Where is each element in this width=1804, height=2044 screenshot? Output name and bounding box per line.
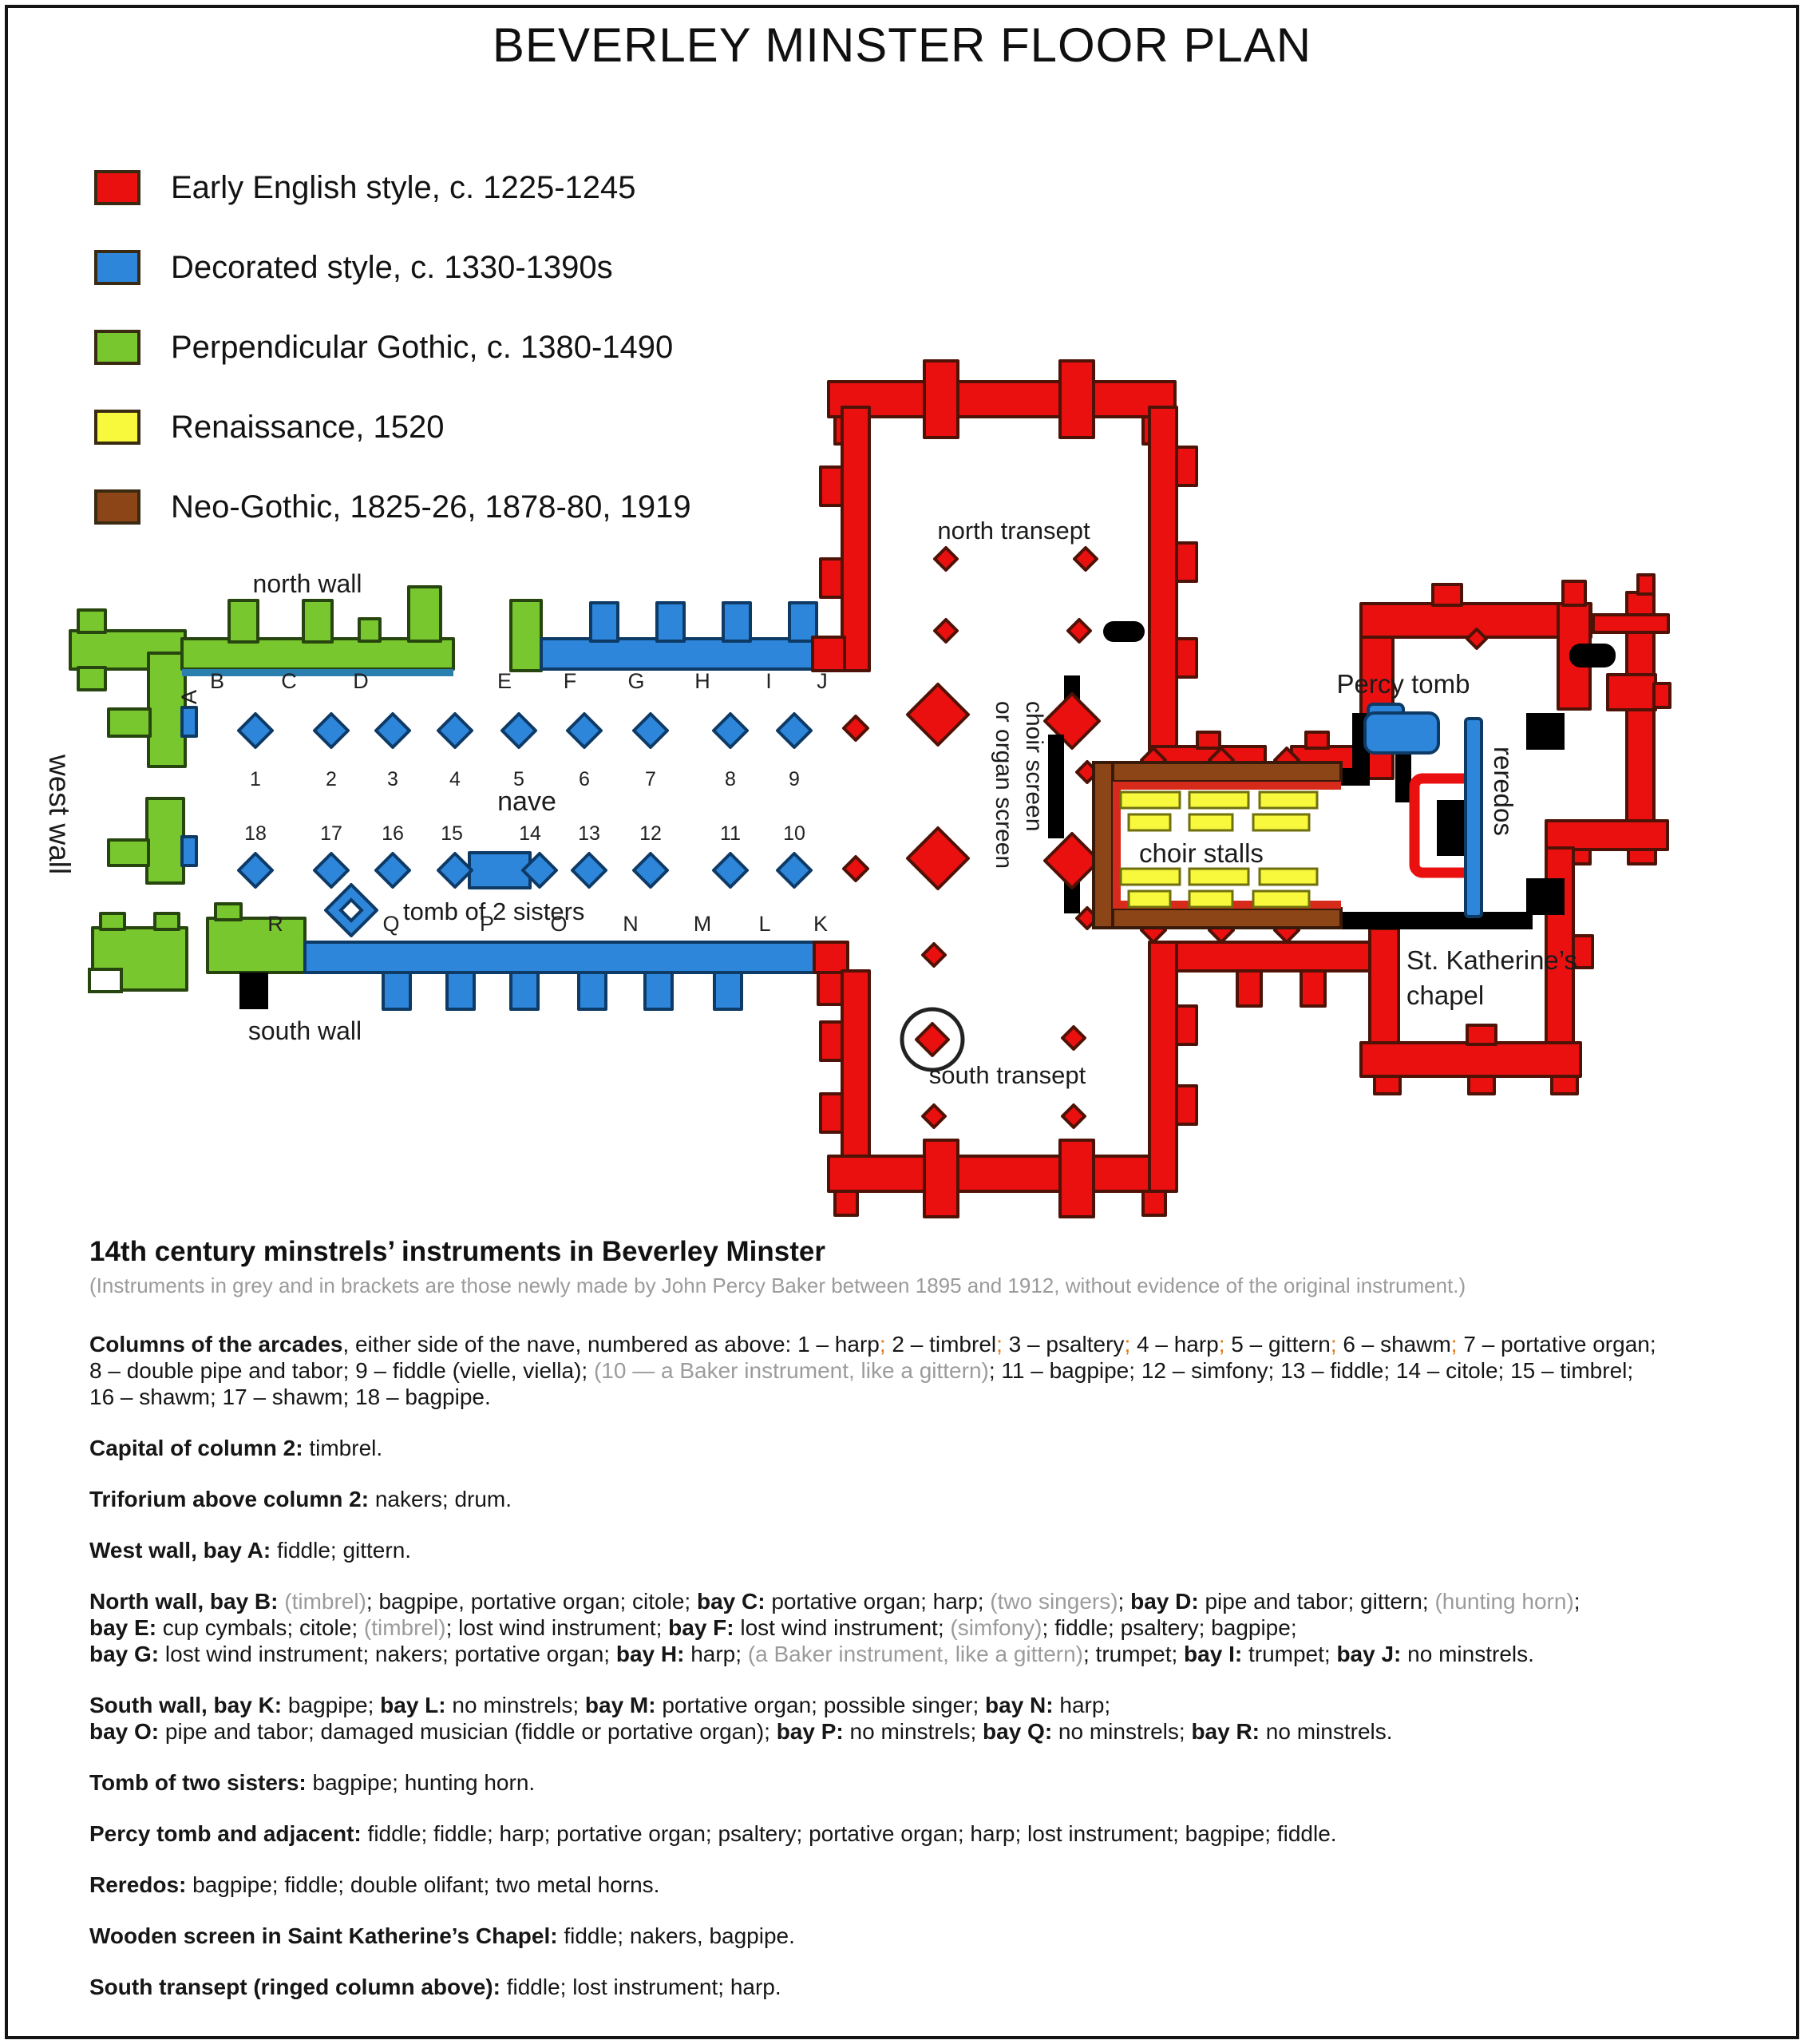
arcade-column <box>634 714 667 747</box>
crossing-pier-nw <box>908 684 968 745</box>
north-arcade-columns: 123456789 <box>239 714 811 790</box>
text-segment: trumpet; <box>1242 1642 1336 1666</box>
text-segment: Percy tomb and adjacent: <box>89 1821 362 1846</box>
text-segment: no minstrels; <box>844 1719 983 1744</box>
reredos-south-block <box>1526 878 1565 915</box>
arcade-column <box>714 714 747 747</box>
notes-paragraph: Triforium above column 2: nakers; drum. <box>89 1486 1769 1512</box>
column-number: 1 <box>250 768 261 790</box>
tomb-of-2-sisters-label: tomb of 2 sisters <box>403 897 584 925</box>
bay-letter: F <box>564 669 577 693</box>
column-number: 3 <box>387 768 398 790</box>
text-segment: 16 – shawm; 17 – shawm; 18 – bagpipe. <box>89 1384 491 1409</box>
arcade-column <box>376 854 409 887</box>
north-wall-blue <box>541 603 838 669</box>
bay-letter: D <box>353 669 369 693</box>
bay-a-letter: A <box>177 690 201 704</box>
bay-letter: Q <box>382 912 399 936</box>
text-segment: nakers; drum. <box>369 1487 512 1511</box>
notes-paragraph: Percy tomb and adjacent: fiddle; fiddle;… <box>89 1820 1769 1847</box>
column-number: 17 <box>320 822 342 845</box>
notes-paragraph: Capital of column 2: timbrel. <box>89 1435 1769 1461</box>
south-transept-label: south transept <box>929 1061 1086 1089</box>
text-segment: bay M: <box>585 1693 656 1717</box>
text-segment: , either side of the nave, numbered as a… <box>342 1332 879 1357</box>
notes-subnote: (Instruments in grey and in brackets are… <box>89 1273 1769 1299</box>
notes-heading: 14th century minstrels’ instruments in B… <box>89 1236 1769 1268</box>
arcade-column <box>777 854 811 887</box>
north-transept-pier-pill <box>1103 621 1145 642</box>
text-segment: (timbrel) <box>284 1589 366 1614</box>
arcade-column <box>315 854 348 887</box>
bay-letter: B <box>210 669 224 693</box>
column-number: 10 <box>783 822 805 845</box>
arcade-column <box>568 714 601 747</box>
arcade-red-column-south <box>844 857 868 881</box>
north-transept-column <box>1068 620 1090 642</box>
text-segment: harp; <box>684 1642 747 1666</box>
column-number: 8 <box>725 768 736 790</box>
notes-paragraph: West wall, bay A: fiddle; gittern. <box>89 1537 1769 1563</box>
notes-paragraph: Columns of the arcades, either side of t… <box>89 1331 1769 1410</box>
south-wall-blue <box>305 942 814 1009</box>
north-wall-label: north wall <box>253 569 362 598</box>
text-segment: no minstrels. <box>1260 1719 1393 1744</box>
notes-paragraph: North wall, bay B: (timbrel); bagpipe, p… <box>89 1588 1769 1667</box>
text-segment: bay J: <box>1336 1642 1401 1666</box>
text-segment: fiddle; nakers, bagpipe. <box>558 1923 795 1948</box>
percy-tomb-label: Percy tomb <box>1337 669 1470 699</box>
percy-tomb-shape <box>1365 704 1438 753</box>
north-transept-column <box>935 548 957 570</box>
text-segment: ; 11 – bagpipe; 12 – simfony; 13 – fiddl… <box>989 1358 1633 1383</box>
arcade-column <box>438 714 472 747</box>
text-segment: (simfony) <box>950 1615 1042 1640</box>
text-segment: South transept (ringed column above): <box>89 1975 500 1999</box>
text-segment: ; <box>996 1332 1003 1357</box>
arcade-column <box>438 854 472 887</box>
arcade-column <box>777 714 811 747</box>
text-segment: ; bagpipe, portative organ; citole; <box>366 1589 697 1614</box>
south-transept-column <box>923 944 945 966</box>
text-segment: no minstrels. <box>1401 1642 1534 1666</box>
text-segment: (10 — a Baker instrument, like a gittern… <box>594 1358 989 1383</box>
text-segment: ; <box>1118 1589 1131 1614</box>
text-segment: timbrel. <box>303 1436 383 1460</box>
arcade-column <box>239 714 272 747</box>
bay-letter: E <box>497 669 512 693</box>
text-segment: North wall, bay B: <box>89 1589 278 1614</box>
bay-letter: N <box>623 912 639 936</box>
text-segment: pipe and tabor; damaged musician (fiddle… <box>159 1719 777 1744</box>
column-number: 18 <box>244 822 267 845</box>
text-segment: (hunting horn) <box>1434 1589 1573 1614</box>
text-segment: ; lost wind instrument; <box>446 1615 669 1640</box>
east-end-pill <box>1569 644 1616 667</box>
text-segment: ; fiddle; psaltery; bagpipe; <box>1042 1615 1297 1640</box>
text-segment: bay I: <box>1184 1642 1242 1666</box>
arcade-column <box>634 854 667 887</box>
text-segment: South wall, bay K: <box>89 1693 282 1717</box>
crossing-pier-sw <box>908 828 968 889</box>
text-segment: no minstrels; <box>1052 1719 1191 1744</box>
column-number: 16 <box>382 822 404 845</box>
text-segment: ; <box>880 1332 886 1357</box>
text-segment: Wooden screen in Saint Katherine’s Chape… <box>89 1923 558 1948</box>
column-number: 6 <box>579 768 590 790</box>
text-segment: bay O: <box>89 1719 159 1744</box>
north-wall-green <box>182 587 541 671</box>
bay-letter: R <box>267 912 283 936</box>
arcade-column <box>315 714 348 747</box>
reredos-label: reredos <box>1489 747 1518 836</box>
bay-letter: I <box>766 669 772 693</box>
text-segment: bay E: <box>89 1615 156 1640</box>
text-segment: 3 – psaltery <box>1003 1332 1125 1357</box>
text-segment: bay R: <box>1191 1719 1260 1744</box>
north-transept-column <box>1074 548 1097 570</box>
text-segment: no minstrels; <box>446 1693 585 1717</box>
text-segment: (two singers) <box>990 1589 1118 1614</box>
bay-letter: C <box>281 669 297 693</box>
ringed-column <box>916 1024 948 1056</box>
column-number: 7 <box>645 768 656 790</box>
text-segment: West wall, bay A: <box>89 1538 271 1563</box>
text-segment: bay D: <box>1130 1589 1199 1614</box>
column-number: 13 <box>578 822 600 845</box>
text-segment: bay G: <box>89 1642 159 1666</box>
text-segment: cup cymbals; citole; <box>156 1615 364 1640</box>
choir-south-wall <box>1339 912 1533 929</box>
text-segment: bay F: <box>668 1615 734 1640</box>
crossing-pier-se <box>1045 834 1099 888</box>
notes-section: 14th century minstrels’ instruments in B… <box>89 1236 1769 2025</box>
text-segment: bay P: <box>777 1719 844 1744</box>
text-segment: bagpipe; fiddle; double olifant; two met… <box>186 1872 659 1897</box>
column-number: 15 <box>441 822 463 845</box>
south-transept-column <box>923 1105 945 1127</box>
nave-blue-rectangle <box>469 853 530 888</box>
bay-letter: M <box>694 912 712 936</box>
west-wall-label: west wall <box>43 754 76 874</box>
column-number: 11 <box>720 822 741 845</box>
reredos-north-block <box>1526 713 1565 750</box>
west-porch-notch <box>89 969 121 992</box>
column-number: 14 <box>519 822 541 845</box>
north-transept-label: north transept <box>937 517 1090 545</box>
text-segment: lost wind instrument; <box>734 1615 951 1640</box>
text-segment: ; <box>1219 1332 1225 1357</box>
text-segment: bagpipe; <box>282 1693 380 1717</box>
text-segment: portative organ; harp; <box>766 1589 991 1614</box>
text-segment: 4 – harp <box>1130 1332 1219 1357</box>
choir-screen-bar <box>1048 735 1064 838</box>
arcade-column <box>376 714 409 747</box>
text-segment: fiddle; lost instrument; harp. <box>500 1975 781 1999</box>
text-segment: bay L: <box>380 1693 445 1717</box>
text-segment: bay H: <box>616 1642 685 1666</box>
text-segment: bagpipe; hunting horn. <box>307 1770 535 1795</box>
text-segment: pipe and tabor; gittern; <box>1199 1589 1435 1614</box>
text-segment: Reredos: <box>89 1872 186 1897</box>
notes-paragraph: South transept (ringed column above): fi… <box>89 1974 1769 2000</box>
west-wall-blue-notch-2 <box>182 837 196 866</box>
south-transept-column <box>1062 1105 1085 1127</box>
north-transept-column <box>935 620 957 642</box>
text-segment: 5 – gittern <box>1225 1332 1331 1357</box>
arcade-column <box>714 854 747 887</box>
notes-paragraph: South wall, bay K: bagpipe; bay L: no mi… <box>89 1692 1769 1745</box>
bay-letter: K <box>813 912 828 936</box>
choir-screen-label: choir screenor organ screen <box>991 701 1047 869</box>
column-number: 4 <box>449 768 461 790</box>
bay-letter: H <box>694 669 710 693</box>
arcade-red-column-north <box>844 716 868 740</box>
text-segment: harp; <box>1054 1693 1111 1717</box>
arcade-column <box>239 854 272 887</box>
notes-paragraph: Tomb of two sisters: bagpipe; hunting ho… <box>89 1769 1769 1796</box>
bay-letter: L <box>758 912 770 936</box>
text-segment: Tomb of two sisters: <box>89 1770 307 1795</box>
south-wall-green-buttress <box>239 972 268 1009</box>
bay-letter: J <box>817 669 828 693</box>
text-segment: 6 – shawm <box>1337 1332 1451 1357</box>
nave-label: nave <box>497 786 556 817</box>
west-wall-blue-notch-1 <box>182 707 196 736</box>
column-number: 12 <box>639 822 662 845</box>
notes-paragraph: Wooden screen in Saint Katherine’s Chape… <box>89 1923 1769 1949</box>
text-segment: ; <box>1574 1589 1580 1614</box>
text-segment: 7 – portative organ; <box>1458 1332 1656 1357</box>
text-segment: ; <box>1331 1332 1337 1357</box>
bay-letter: G <box>627 669 644 693</box>
text-segment: portative organ; possible singer; <box>656 1693 985 1717</box>
arcade-column <box>502 714 536 747</box>
text-segment: ; trumpet; <box>1083 1642 1184 1666</box>
page: BEVERLEY MINSTER FLOOR PLAN Early Englis… <box>0 0 1804 2044</box>
arcade-column <box>572 854 606 887</box>
choir-stalls-label: choir stalls <box>1139 838 1264 868</box>
text-segment: bay N: <box>985 1693 1054 1717</box>
column-number: 9 <box>789 768 800 790</box>
south-wall-label: south wall <box>248 1016 362 1045</box>
notes-paragraphs: Columns of the arcades, either side of t… <box>89 1331 1769 2000</box>
text-segment: 8 – double pipe and tabor; 9 – fiddle (v… <box>89 1358 594 1383</box>
percy-tomb-stem <box>1395 751 1411 802</box>
south-transept-column <box>1062 1027 1085 1049</box>
text-segment: (timbrel) <box>364 1615 446 1640</box>
text-segment: (a Baker instrument, like a gittern) <box>748 1642 1083 1666</box>
text-segment: fiddle; fiddle; harp; portative organ; p… <box>362 1821 1337 1846</box>
notes-paragraph: Reredos: bagpipe; fiddle; double olifant… <box>89 1872 1769 1898</box>
reredos-bar <box>1466 719 1482 917</box>
text-segment: bay C: <box>697 1589 766 1614</box>
text-segment: Capital of column 2: <box>89 1436 303 1460</box>
text-segment: fiddle; gittern. <box>271 1538 411 1563</box>
text-segment: Columns of the arcades <box>89 1332 342 1357</box>
text-segment: 2 – timbrel <box>886 1332 997 1357</box>
text-segment: ; <box>1451 1332 1458 1357</box>
text-segment: lost wind instrument; nakers; portative … <box>159 1642 616 1666</box>
text-segment: bay Q: <box>983 1719 1052 1744</box>
text-segment: Triforium above column 2: <box>89 1487 369 1511</box>
column-number: 2 <box>326 768 337 790</box>
